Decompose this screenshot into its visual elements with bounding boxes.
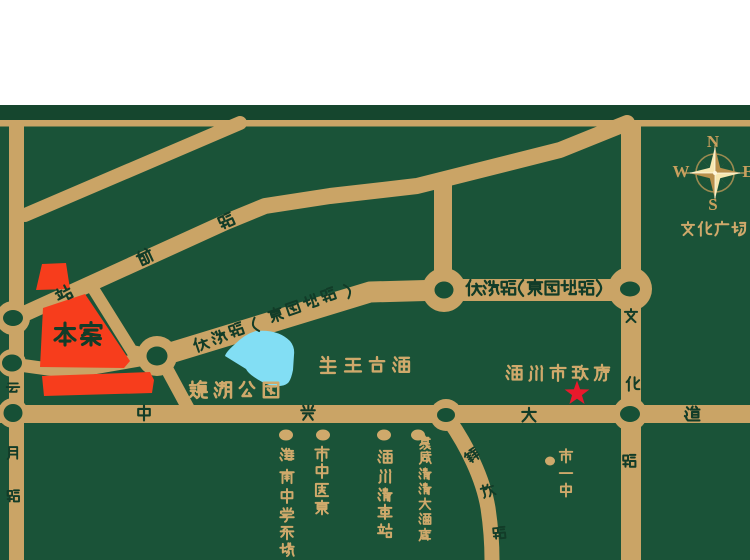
svg-text:N: N bbox=[707, 132, 720, 151]
svg-text:S: S bbox=[708, 195, 717, 214]
svg-text:E: E bbox=[742, 162, 750, 181]
svg-text:W: W bbox=[673, 162, 690, 181]
